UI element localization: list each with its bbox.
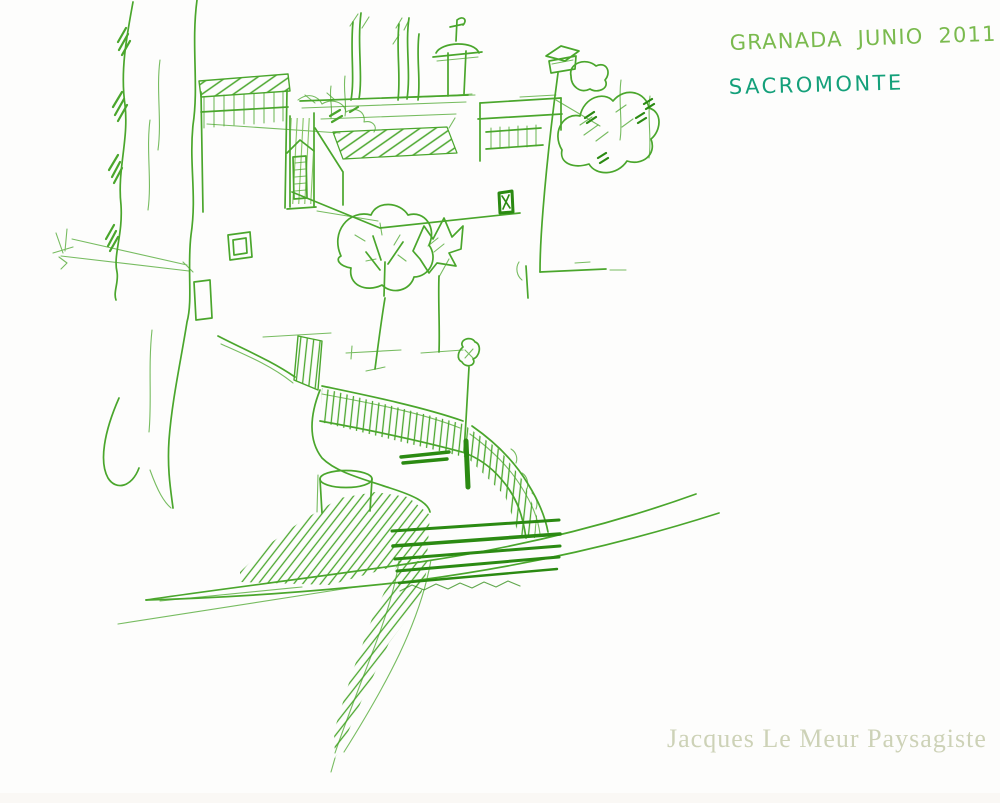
scanned-sketch-page: GRANADA JUNIO 2011 SACROMONTE Jacques Le… (0, 0, 1000, 803)
sketch-canvas: GRANADA JUNIO 2011 SACROMONTE Jacques Le… (0, 0, 1000, 803)
scan-edge-smudge (0, 793, 1000, 803)
annotation-line2: SACROMONTE (729, 70, 905, 99)
fence-post (466, 441, 468, 487)
watermark-signature: Jacques Le Meur Paysagiste (667, 724, 987, 753)
